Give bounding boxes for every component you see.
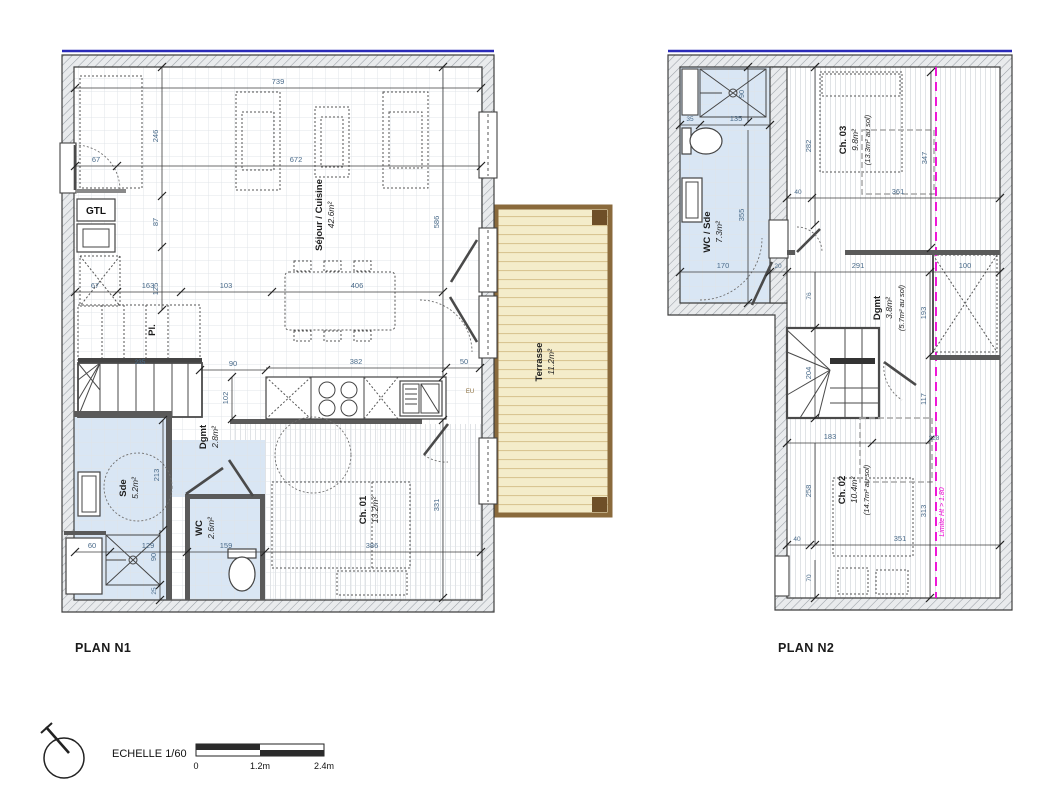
plan-n2: Limite Ht > 1.80 (668, 51, 1012, 610)
room-name: Séjour / Cuisine (314, 179, 325, 251)
eu-label: EU (466, 389, 474, 395)
room-area: 3.8m² (884, 296, 894, 319)
toilet-n1 (228, 549, 256, 591)
dim-50: 50 (460, 357, 468, 366)
room-area: 13.2m² (370, 496, 380, 524)
room-name: Ch. 03 (838, 126, 849, 155)
stair-handrail (830, 358, 875, 364)
scale-label: ECHELLE 1/60 (112, 748, 187, 760)
scale-tick-2: 2.4m (314, 761, 334, 771)
dim-35: 35 (686, 116, 694, 123)
dim-67: 67 (92, 155, 100, 164)
dim-183: 183 (824, 432, 837, 441)
room-area: 10.4m² (849, 476, 859, 504)
plan1-title: PLAN N1 (75, 641, 131, 655)
north-arrow-icon (41, 723, 84, 778)
partition (930, 355, 1000, 360)
dim-159: 159 (220, 541, 233, 550)
dim-60: 60 (88, 541, 96, 550)
dim-129: 129 (142, 541, 155, 550)
dim-76: 76 (806, 292, 813, 300)
room-name: Ch. 02 (837, 476, 848, 505)
room-name: Sde (118, 479, 129, 496)
dim-163: 163 (142, 281, 155, 290)
dim-386: 386 (366, 541, 379, 550)
room-name: WC / Sde (702, 211, 713, 252)
dim-313: 313 (919, 505, 928, 518)
kitchen-sink (400, 381, 442, 416)
partition (260, 499, 265, 600)
dim-204: 204 (804, 367, 813, 380)
room-area: 2.8m² (210, 425, 220, 449)
room-name: WC (194, 520, 205, 536)
dim-100: 100 (959, 261, 972, 270)
pl-label: Pl. (147, 324, 158, 336)
room-area-sol: (14.7m² au sol) (862, 464, 871, 515)
room-name: Dgmt (872, 295, 883, 320)
room-area: 5.2m² (130, 476, 140, 499)
room-area: 42.6m² (326, 201, 336, 229)
dim-90: 90 (229, 359, 237, 368)
scale-bar: ECHELLE 1/60 0 1.2m 2.4m (112, 744, 334, 771)
dim-170: 170 (717, 261, 730, 270)
room-area: 7.3m² (714, 220, 724, 243)
dim-90b: 90 (149, 553, 158, 561)
scale-tick-1: 1.2m (250, 761, 270, 771)
dim-291: 291 (852, 261, 865, 270)
room-name: Terrasse (534, 343, 545, 382)
dim-258: 258 (804, 485, 813, 498)
dim-102: 102 (221, 392, 230, 405)
dim-103: 103 (220, 281, 233, 290)
terrace-post-bottom (592, 497, 607, 512)
dim-406: 406 (351, 281, 364, 290)
stairs-n2 (787, 328, 879, 418)
ch02-window (775, 556, 789, 596)
partition (845, 250, 1000, 255)
dim-331: 331 (432, 499, 441, 512)
dim-382: 382 (350, 357, 363, 366)
washbasin (78, 472, 100, 516)
room-area: 9.8m² (850, 128, 860, 151)
washbasin-n2 (682, 178, 702, 222)
dim-87: 87 (151, 218, 160, 226)
room-area: 2.6m² (206, 516, 216, 540)
gtl-box: GTL (77, 199, 115, 252)
height-limit-label: Limite Ht > 1.80 (939, 487, 946, 536)
room-area-sol: (13.3m² au sol) (863, 114, 872, 165)
dim-40: 40 (794, 189, 802, 196)
dim-193: 193 (919, 307, 928, 320)
shower-screen (682, 69, 698, 115)
dim-90s: 90 (737, 90, 746, 98)
terrace-post-top (592, 210, 607, 225)
plan2-title: PLAN N2 (778, 641, 834, 655)
dim-40b: 40 (793, 536, 801, 543)
dim-282: 282 (804, 140, 813, 153)
room-area: 11.2m² (546, 348, 556, 375)
partition (166, 411, 172, 600)
stair-window (769, 220, 788, 258)
dim-672: 672 (290, 155, 303, 164)
dim-355: 355 (737, 209, 746, 222)
room-name: Dgmt (198, 424, 209, 449)
dim-70: 70 (806, 574, 813, 582)
dim-351: 351 (894, 534, 907, 543)
dim-739: 739 (272, 77, 285, 86)
dim-361: 361 (892, 187, 905, 196)
dim-586: 586 (432, 216, 441, 229)
entry-shelf (76, 189, 126, 193)
toilet-n2 (682, 128, 722, 154)
room-name: Ch. 01 (358, 495, 369, 524)
partition (64, 531, 106, 535)
dim-25: 25 (151, 587, 158, 595)
gtl-label: GTL (86, 206, 106, 217)
plan1-bedroom-floor (230, 424, 482, 600)
dim-67b: 67 (91, 281, 99, 290)
dim-20: 20 (774, 263, 782, 270)
floor-plan-sheet: GTL Pl. (0, 0, 1042, 800)
room-area-sol: (5.7m² au sol) (897, 284, 906, 331)
washer (66, 538, 102, 594)
kitchen-counter (266, 377, 446, 419)
plan-n1: GTL Pl. (60, 51, 610, 612)
dim-347: 347 (920, 152, 929, 165)
partition (74, 411, 172, 417)
dim-213: 213 (152, 469, 161, 482)
scale-tick-0: 0 (193, 761, 198, 771)
dim-135: 135 (730, 114, 743, 123)
dim-246: 246 (151, 130, 160, 143)
dim-235: 235 (135, 359, 146, 366)
dim-117: 117 (919, 393, 928, 405)
dim-228: 228 (929, 435, 940, 442)
